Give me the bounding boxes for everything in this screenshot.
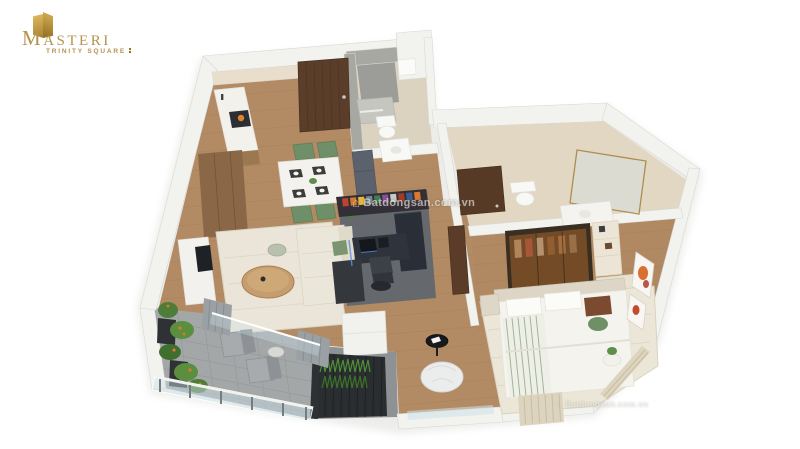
green-pillow — [588, 317, 608, 331]
shelf-item — [599, 226, 606, 233]
dining-chair — [293, 143, 315, 160]
bottle — [221, 94, 223, 100]
tall-cabinet — [198, 150, 248, 238]
floor-plan-render: MASTERI TRINITY SQUARE ⌂ Batdongsan.com.… — [0, 0, 800, 449]
apartment-3d-floorplan — [0, 0, 800, 449]
door-handle — [342, 95, 346, 99]
brown-pillow — [584, 296, 612, 317]
monitor — [359, 239, 377, 253]
bathroom-2-door — [457, 166, 505, 215]
brand-subtitle: TRINITY SQUARE — [46, 48, 131, 55]
bean-bag — [421, 362, 463, 392]
toilet — [379, 126, 395, 138]
pan — [238, 115, 244, 121]
side-table-plant — [607, 347, 617, 355]
shelf-item — [605, 243, 612, 250]
vanity-basin — [579, 210, 591, 218]
brand-subtitle-text: TRINITY SQUARE — [46, 48, 126, 55]
tv — [195, 245, 213, 272]
monitor-2 — [378, 237, 389, 248]
balcony-table — [268, 347, 284, 357]
bed-pillow — [506, 297, 542, 317]
sofa-pillow-green — [332, 240, 348, 256]
table-decor — [261, 277, 266, 282]
nightstand — [480, 294, 500, 316]
subtitle-dots-icon — [129, 51, 131, 53]
brand-logo: MASTERI TRINITY SQUARE — [22, 12, 152, 60]
washbasin — [391, 146, 402, 154]
table-plant — [309, 178, 317, 184]
toilet — [516, 193, 534, 206]
dining-chair — [315, 203, 336, 220]
desk-chair — [369, 256, 393, 275]
side-stool — [268, 244, 286, 256]
mirror-cabinet — [398, 59, 416, 76]
bed-pillow — [544, 291, 582, 311]
round-side-table — [603, 354, 621, 366]
toilet-tank — [510, 181, 536, 193]
dining-chair — [291, 205, 313, 223]
office-cabinet — [332, 259, 365, 304]
dining-chair — [317, 141, 338, 158]
